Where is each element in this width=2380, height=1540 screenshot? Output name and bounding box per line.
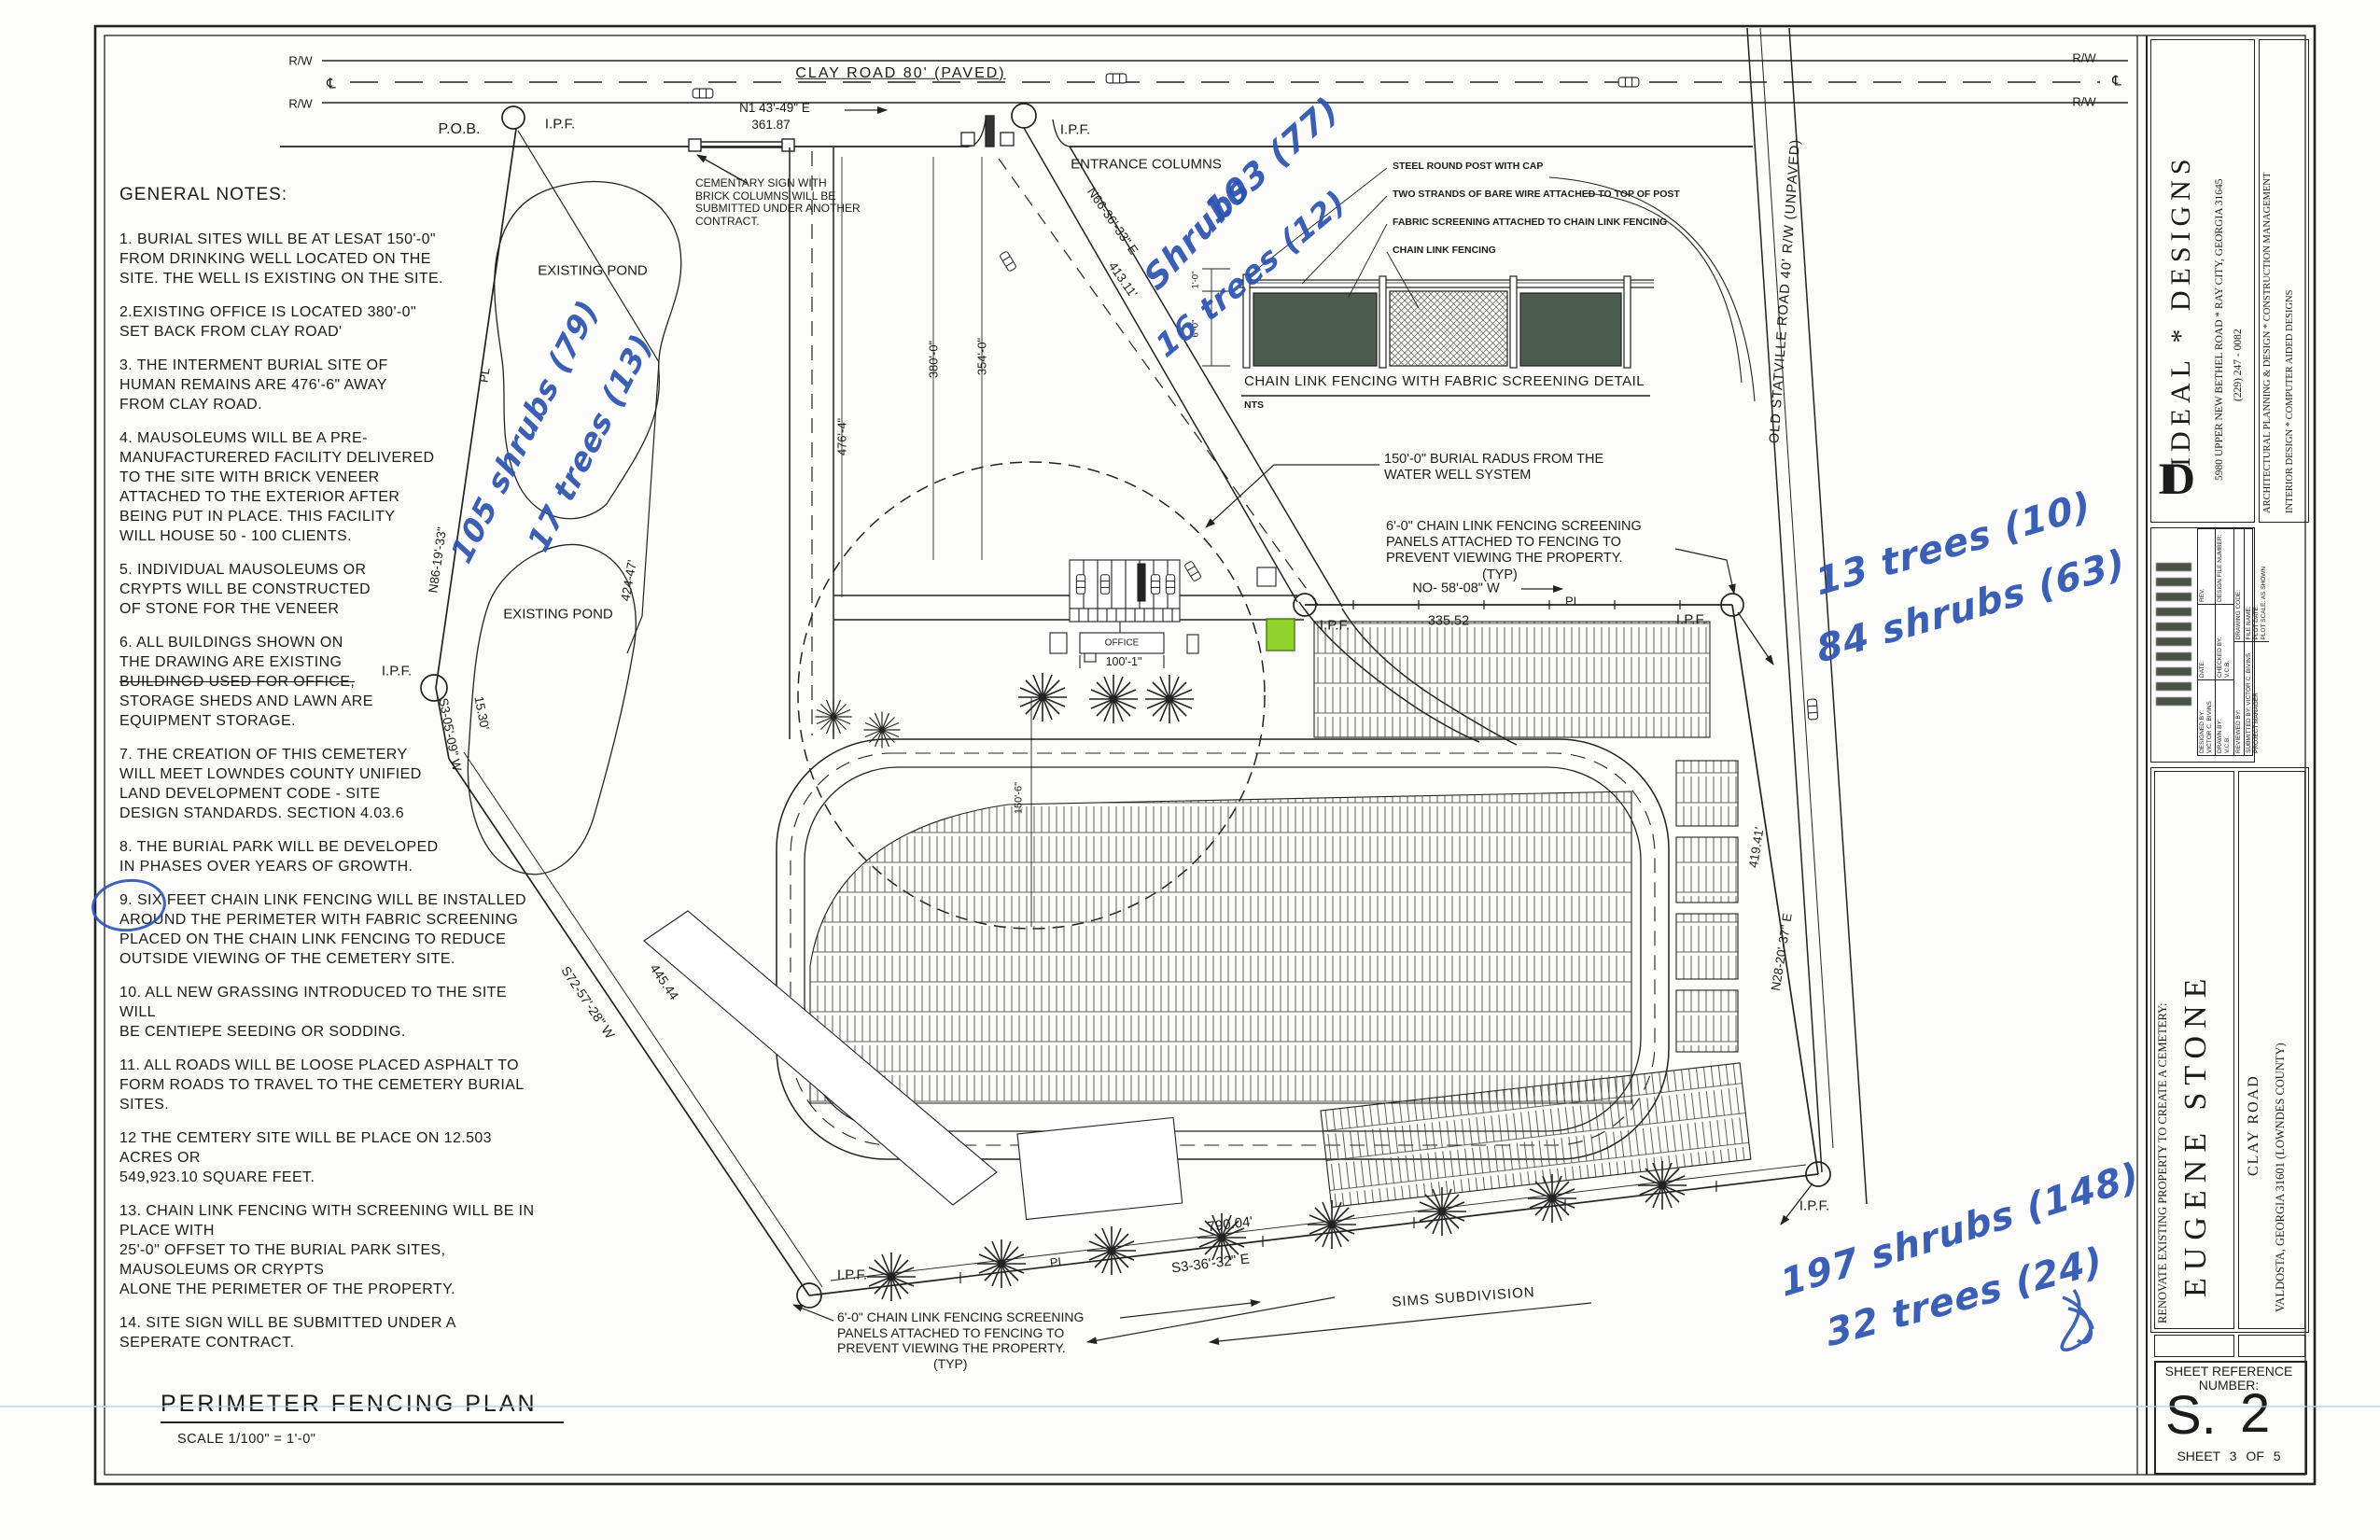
file-name-label: FILE NAME: (2246, 606, 2252, 639)
entrance-gate-symbol (961, 116, 1014, 147)
note-2: 2.EXISTING OFFICE IS LOCATED 380'-0" SET… (119, 302, 541, 342)
bearing-label: N1 43'-49" E (739, 101, 810, 116)
pen-scribble (2062, 1290, 2093, 1350)
firm-phone: (229) 247 - 0082 (2233, 140, 2247, 401)
detail-callout: FABRIC SCREENING ATTACHED TO CHAIN LINK … (1393, 217, 1667, 228)
ipf-label: I.P.F. (1060, 121, 1090, 137)
submitted-by-value: VICTOR C. BIVINS (2246, 653, 2252, 706)
project-description: RENOVATE EXISTING PROPERTY TO CREATE A C… (2156, 777, 2175, 1323)
note-11: 11. ALL ROADS WILL BE LOOSE PLACED ASPHA… (119, 1056, 541, 1114)
sheet-number-digit: 2 (2240, 1383, 2270, 1446)
client-name: EUGENE STONE (2178, 803, 2229, 1297)
reviewed-by-label: REVIEWED BY: (2234, 642, 2244, 756)
dimension-label: 380'-0" (928, 341, 942, 378)
firm-services-line: ARCHITECTURAL PLANNING & DESIGN * CONSTR… (2262, 51, 2281, 513)
design-file-label: DESIGN FILE NUMBER: (2216, 529, 2233, 604)
office-label: OFFICE (1105, 637, 1140, 649)
ipf-label: I.P.F. (382, 663, 412, 679)
scan-artifact (0, 1406, 2380, 1407)
project-road: CLAY ROAD (2246, 933, 2270, 1176)
centerline-symbol: ℄ (327, 76, 336, 91)
entrance-columns-label: ENTRANCE COLUMNS (1071, 156, 1222, 172)
clay-road (322, 61, 2128, 103)
checked-by-label: CHECKED BY: (2217, 637, 2223, 678)
note-1: 1. BURIAL SITES WILL BE AT LESAT 150'-0"… (119, 230, 541, 288)
distance-label: 361.87 (751, 118, 790, 133)
detail-title: CHAIN LINK FENCING WITH FABRIC SCREENING… (1244, 373, 1645, 389)
note-6-text-after: STORAGE SHEDS AND LAWN ARE EQUIPMENT STO… (119, 693, 373, 729)
ipf-label: I.P.F. (545, 116, 575, 132)
designed-by-value: VICTOR C. BIVINS (2206, 701, 2213, 753)
plot-scale-label: PLOT SCALE: AS SHOWN (2261, 567, 2267, 640)
screening-note-top: 6'-0" CHAIN LINK FENCING SCREENING PANEL… (1386, 519, 1694, 567)
empty-field-box (2238, 1335, 2305, 1357)
note-10: 10. ALL NEW GRASSING INTRODUCED TO THE S… (119, 983, 541, 1042)
existing-pond-label: EXISTING POND (538, 262, 648, 278)
general-notes: GENERAL NOTES: 1. BURIAL SITES WILL BE A… (119, 185, 541, 1366)
radius-dimension-label: 150'-6" (1014, 782, 1026, 814)
firm-services-line: INTERIOR DESIGN * COMPUTER AIDED DESIGNS (2285, 51, 2303, 513)
property-line-symbol: PL (1049, 1255, 1066, 1271)
dimension-label: 354'-0" (976, 338, 990, 375)
property-line-symbol: PL (477, 367, 493, 384)
note-3: 3. THE INTERMENT BURIAL SITE OF HUMAN RE… (119, 356, 541, 414)
firm-logo: ID (2158, 454, 2182, 505)
detail-callout: STEEL ROUND POST WITH CAP (1393, 161, 1543, 172)
sheet-of-label: SHEET 3 OF 5 (2154, 1449, 2303, 1463)
note-14: 14. SITE SIGN WILL BE SUBMITTED UNDER A … (119, 1313, 541, 1352)
drawing-code-label: DRAWING CODE: (2234, 529, 2244, 642)
plan-scale: SCALE 1/100" = 1'-0" (177, 1432, 315, 1447)
detail-dimension: 1'-0" (1192, 272, 1202, 289)
ipf-label: I.P.F. (1799, 1197, 1829, 1213)
detail-scale-nts: NTS (1244, 399, 1264, 411)
burial-radius-note: 150'-0" BURIAL RADUS FROM THE WATER WELL… (1384, 452, 1664, 483)
distance-label: 335.52 (1428, 614, 1469, 630)
note-8: 8. THE BURIAL PARK WILL BE DEVELOPED IN … (119, 837, 541, 876)
plot-date-label: PLOT DATE: (2253, 605, 2260, 639)
note-5: 5. INDIVIDUAL MAUSOLEUMS OR CRYPTS WILL … (119, 560, 541, 619)
rw-label: R/W (2072, 52, 2095, 66)
ipf-label: I.P.F. (1320, 617, 1350, 633)
clay-road-label: CLAY ROAD 80' (PAVED) (795, 65, 1005, 82)
sheet-number-prefix: S. (2165, 1385, 2217, 1448)
dimension-label: 476'-4" (836, 418, 850, 455)
detail-callout: CHAIN LINK FENCING (1393, 245, 1496, 256)
submitted-role: PROJECT MANAGER (2253, 693, 2260, 753)
pob-label: P.O.B. (438, 121, 480, 138)
date-label: DATE: (2198, 604, 2215, 679)
drawn-by-label: DRAWN BY: (2217, 720, 2223, 753)
rw-label: R/W (288, 98, 312, 112)
firm-name: IDEAL * DESIGNS (2165, 51, 2214, 467)
typ-label: (TYP) (933, 1356, 968, 1371)
property-line-symbol: PL (1565, 595, 1580, 609)
note-6-text: 6. ALL BUILDINGS SHOWN ON THE DRAWING AR… (119, 635, 343, 670)
empty-field-box (2154, 1335, 2234, 1357)
designed-by-label: DESIGNED BY: (2199, 710, 2205, 753)
rev-label: REV. (2198, 529, 2215, 604)
checked-by-value: V.C.B. (2224, 661, 2231, 678)
rw-label: R/W (2072, 96, 2095, 110)
ipf-label: I.P.F. (1676, 611, 1706, 627)
rw-label: R/W (288, 55, 312, 69)
drawn-by-value: V.C.B. (2224, 736, 2231, 753)
note-12: 12 THE CEMTERY SITE WILL BE PLACE ON 12.… (119, 1128, 541, 1187)
dimension-label: 100'-1" (1106, 655, 1142, 668)
burial-plot-fields (644, 622, 1751, 1219)
green-highlight-marker (1267, 619, 1295, 651)
note-13: 13. CHAIN LINK FENCING WITH SCREENING WI… (119, 1201, 541, 1299)
drawing-control-fields: DESIGNED BY:VICTOR C. BIVINS DATE: REV. … (2197, 528, 2253, 756)
screening-note-bottom: 6'-0" CHAIN LINK FENCING SCREENING PANEL… (837, 1309, 1136, 1356)
existing-pond-label: EXISTING POND (503, 606, 613, 622)
corner-arrows (1738, 612, 1813, 1225)
project-location: VALDOSTA, GEORGIA 31601 (LOWNDES COUNTY) (2274, 793, 2294, 1312)
submitted-by-label: SUBMITTED BY: (2246, 707, 2252, 753)
approval-stamp (2156, 560, 2191, 706)
note-9: 9. SIX FEET CHAIN LINK FENCING WILL BE I… (119, 890, 541, 969)
general-notes-title: GENERAL NOTES: (119, 185, 541, 205)
centerline-symbol: ℄ (2112, 73, 2121, 89)
detail-callout: TWO STRANDS OF BARE WIRE ATTACHED TO TOP… (1393, 189, 1680, 200)
firm-address: 5980 UPPER NEW BETHEL ROAD * RAY CITY, G… (2214, 51, 2231, 481)
cemetery-sign-note: CEMENTARY SIGN WITH BRICK COLUMNS WILL B… (695, 177, 887, 228)
bearing-label: NO- 58'-08" W (1412, 581, 1499, 597)
sheet: GENERAL NOTES: 1. BURIAL SITES WILL BE A… (0, 0, 2380, 1540)
note-7: 7. THE CREATION OF THIS CEMETERY WILL ME… (119, 745, 541, 823)
fence-detail-drawing (1202, 168, 1654, 396)
note-6-struck-text: BUILDINGD USED FOR OFFICE, (119, 674, 355, 690)
ipf-label: I.P.F. (837, 1267, 867, 1282)
